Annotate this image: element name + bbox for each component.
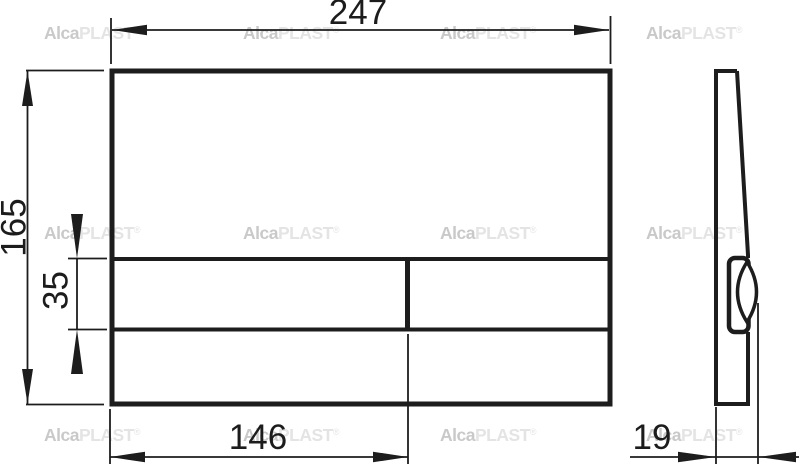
side-view <box>716 71 757 404</box>
label-button-row-height: 35 <box>39 256 74 326</box>
arrowhead-left <box>110 452 145 463</box>
side-button-lens <box>738 262 757 322</box>
arrowhead-up <box>22 71 33 106</box>
arrowhead-up-outside <box>71 330 83 375</box>
dimension-plate-height <box>22 71 104 405</box>
label-plate-depth: 19 <box>592 420 712 455</box>
arrowhead-left <box>112 25 147 36</box>
arrowhead-right <box>574 25 609 36</box>
technical-drawing-canvas: AlcaPLAST®AlcaPLAST®AlcaPLAST®AlcaPLAST®… <box>0 0 800 466</box>
arrowhead-left-outside <box>758 452 796 463</box>
flush-plate-drawing <box>0 0 800 466</box>
side-profile-outline <box>716 71 748 404</box>
label-plate-width: 247 <box>288 0 428 30</box>
label-plate-height: 165 <box>0 178 32 278</box>
arrowhead-down-outside <box>71 214 83 259</box>
front-view <box>112 71 610 404</box>
side-profile-slope <box>737 71 748 258</box>
arrowhead-down <box>22 369 33 404</box>
plate-outline <box>112 71 610 404</box>
arrowhead-right <box>373 452 408 463</box>
label-large-button-width: 146 <box>188 420 328 455</box>
